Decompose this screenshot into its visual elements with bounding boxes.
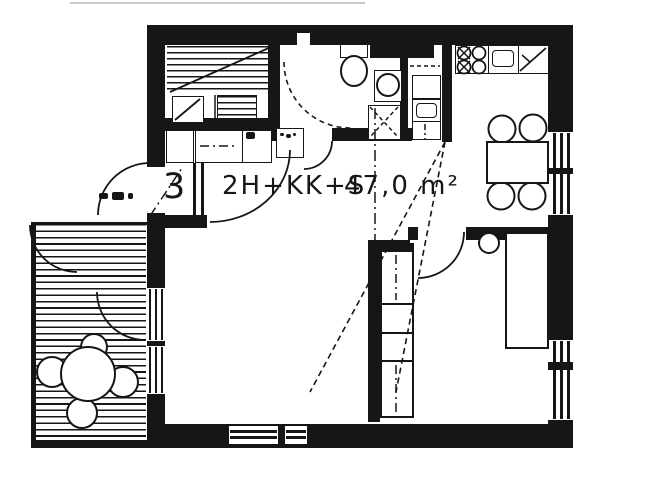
- dining-chair: [489, 116, 516, 143]
- stove-burner: [473, 61, 486, 74]
- balcony-door-swing: [97, 292, 145, 340]
- sauna-bench-diagonal: [170, 47, 271, 92]
- balcony-chair: [67, 398, 97, 428]
- balcony-table: [61, 347, 115, 401]
- bedroom-door-swing: [418, 232, 464, 278]
- bathroom-sink-basin: [377, 74, 399, 96]
- sauna-stove-diagonal: [175, 99, 200, 120]
- area-label: 47,0 m²: [344, 173, 460, 199]
- apartment-number: 3: [163, 170, 185, 205]
- entry-door-swing: [98, 163, 150, 215]
- bathroom-door-swing: [304, 141, 332, 169]
- bedroom-stool: [479, 233, 499, 253]
- plan-linework: [0, 0, 650, 495]
- toilet-bowl: [341, 56, 367, 86]
- dining-table: [487, 142, 548, 183]
- dining-chair: [520, 115, 547, 142]
- floor-plan: 3 2H+KK+S 47,0 m²: [0, 0, 650, 495]
- balcony-gate-swing: [30, 225, 77, 272]
- dining-chair: [519, 183, 546, 210]
- refrigerator-tick: [522, 55, 530, 62]
- refrigerator-diagonal: [520, 48, 546, 71]
- stove-burner: [473, 47, 486, 60]
- dining-chair: [488, 183, 515, 210]
- washing-machine-cross: [370, 107, 398, 137]
